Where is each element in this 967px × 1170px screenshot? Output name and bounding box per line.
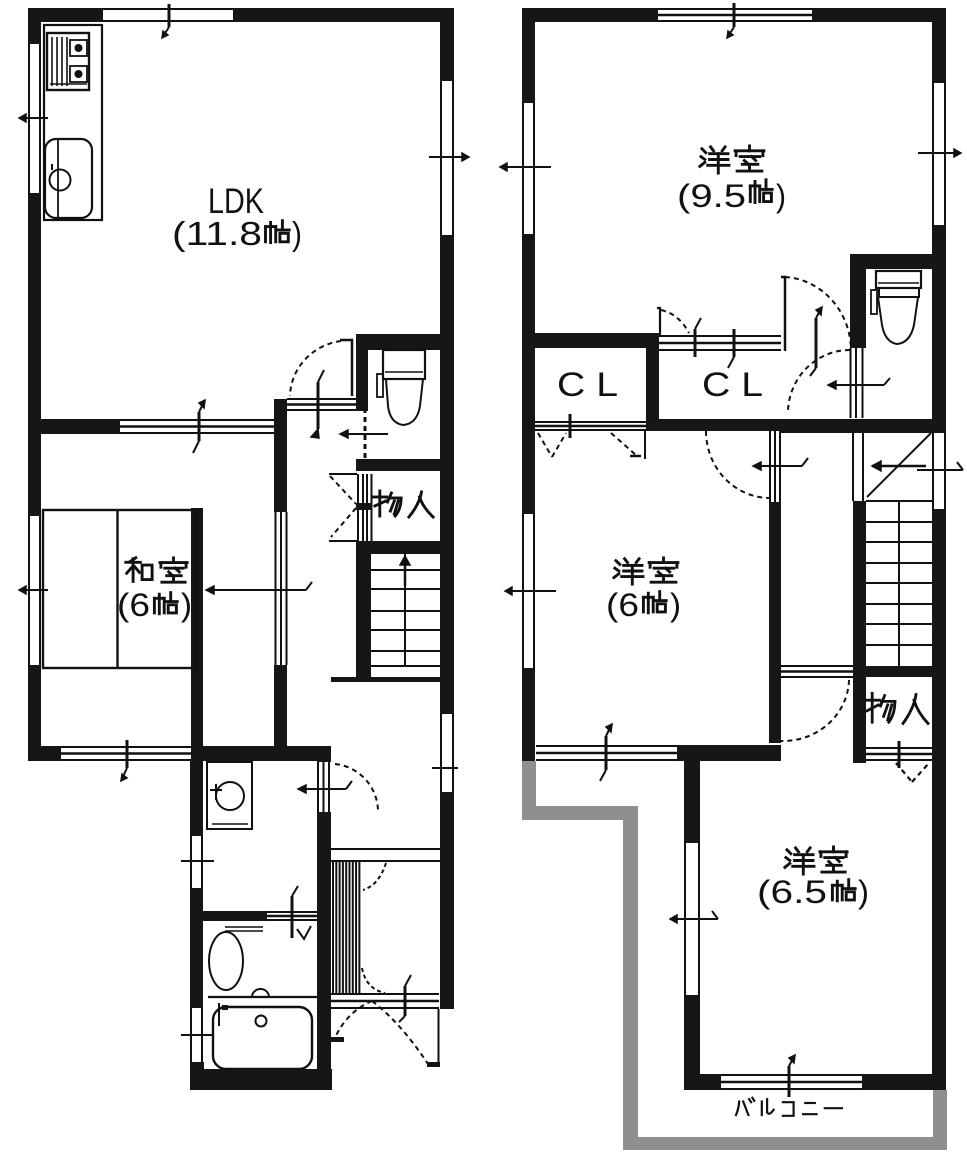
svg-text:(6: (6 (117, 587, 150, 623)
svg-text:C L: C L (702, 366, 763, 404)
svg-text:): ) (776, 178, 786, 214)
svg-text:): ) (670, 587, 681, 623)
svg-text:(9.5: (9.5 (677, 178, 746, 214)
svg-text:): ) (292, 215, 302, 252)
svg-text:(6.5: (6.5 (757, 874, 827, 910)
svg-text:(6: (6 (606, 587, 639, 623)
svg-text:): ) (858, 874, 869, 910)
svg-text:C L: C L (557, 366, 618, 404)
svg-text:): ) (181, 587, 192, 623)
svg-text:(11.8: (11.8 (172, 215, 262, 252)
